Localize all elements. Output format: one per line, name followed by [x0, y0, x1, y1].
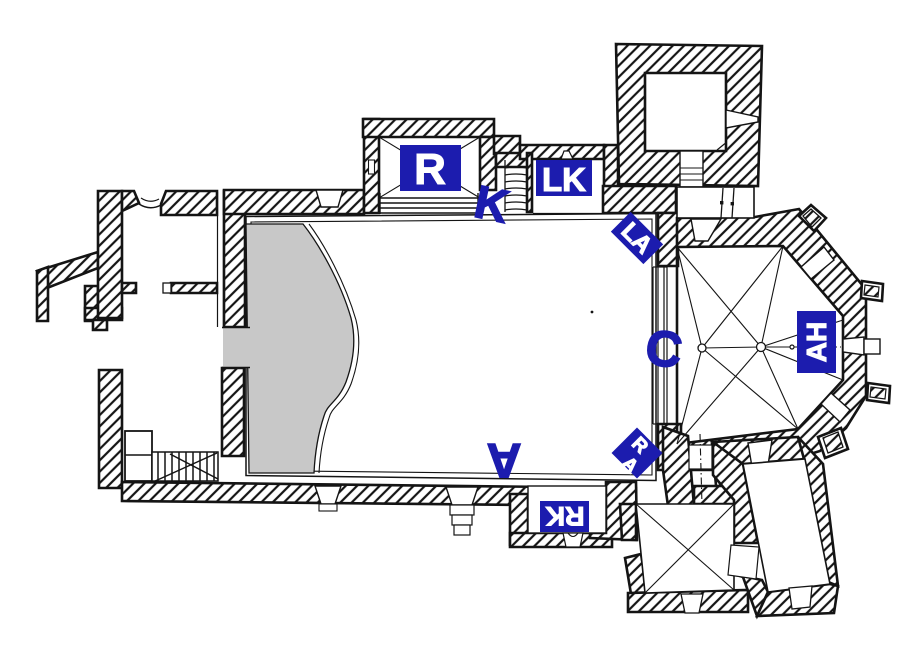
svg-text:AH: AH — [801, 322, 832, 362]
svg-text:LK: LK — [542, 161, 586, 198]
svg-text:R: R — [414, 145, 446, 194]
svg-text:A: A — [487, 433, 522, 486]
svg-text:C: C — [642, 319, 686, 379]
svg-text:RK: RK — [545, 501, 584, 531]
